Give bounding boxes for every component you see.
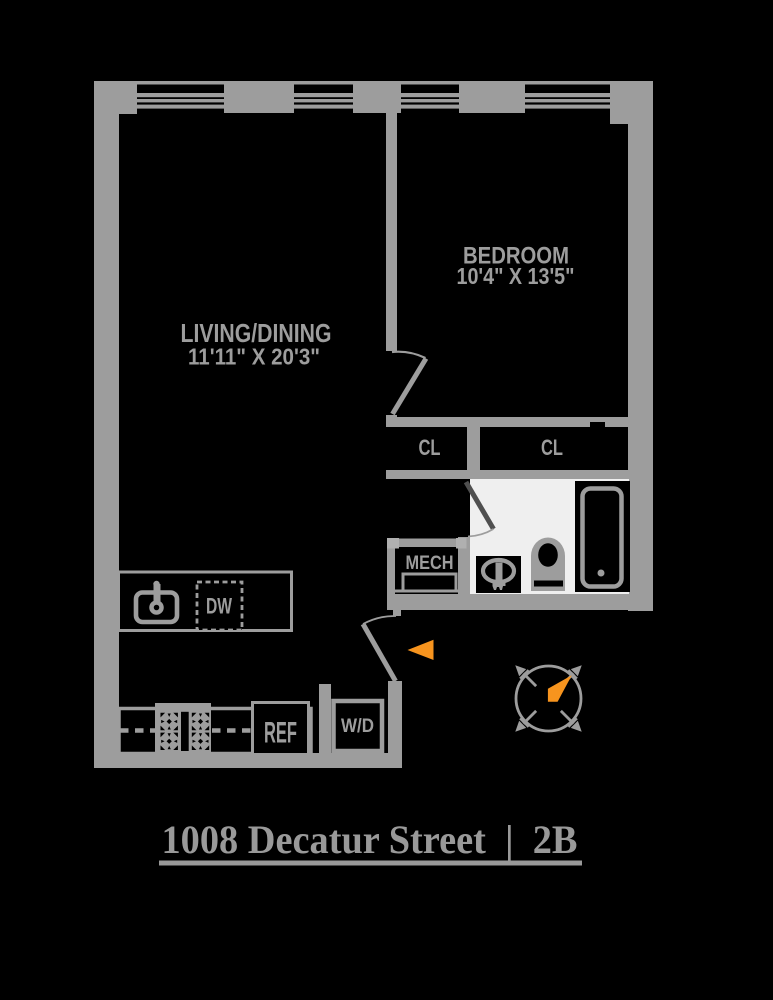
svg-text:DW: DW [206, 594, 232, 619]
svg-text:CL: CL [541, 435, 563, 460]
svg-text:CL: CL [419, 435, 441, 460]
svg-text:11'11" X 20'3": 11'11" X 20'3" [188, 344, 320, 370]
svg-text:W/D: W/D [341, 716, 374, 737]
svg-text:MECH: MECH [406, 552, 454, 574]
svg-text:1008 Decatur Street | 2B: 1008 Decatur Street | 2B [162, 817, 578, 862]
svg-text:REF: REF [264, 717, 297, 750]
svg-text:10'4" X 13'5": 10'4" X 13'5" [457, 263, 575, 289]
